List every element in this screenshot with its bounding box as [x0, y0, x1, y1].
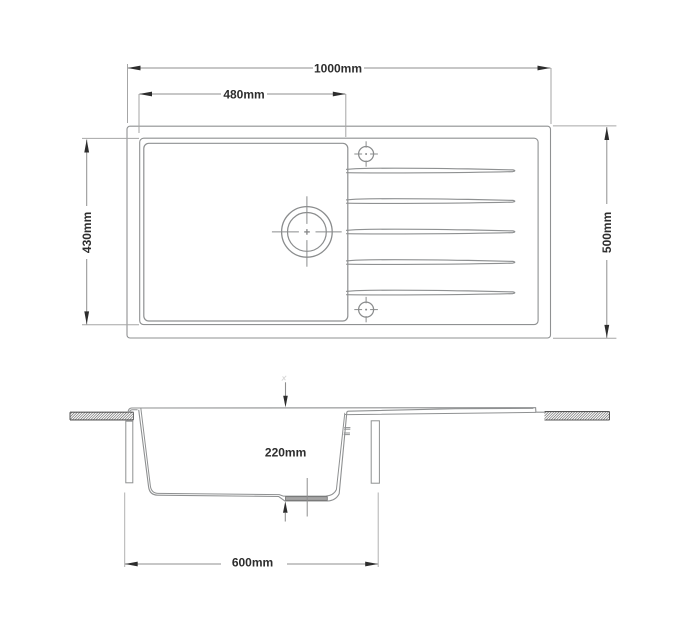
svg-text:500mm: 500mm: [600, 212, 614, 253]
svg-text:1000mm: 1000mm: [314, 61, 362, 75]
svg-text:220mm: 220mm: [265, 445, 306, 459]
svg-text:600mm: 600mm: [232, 556, 273, 570]
svg-text:430mm: 430mm: [80, 212, 94, 253]
svg-text:480mm: 480mm: [223, 87, 264, 101]
